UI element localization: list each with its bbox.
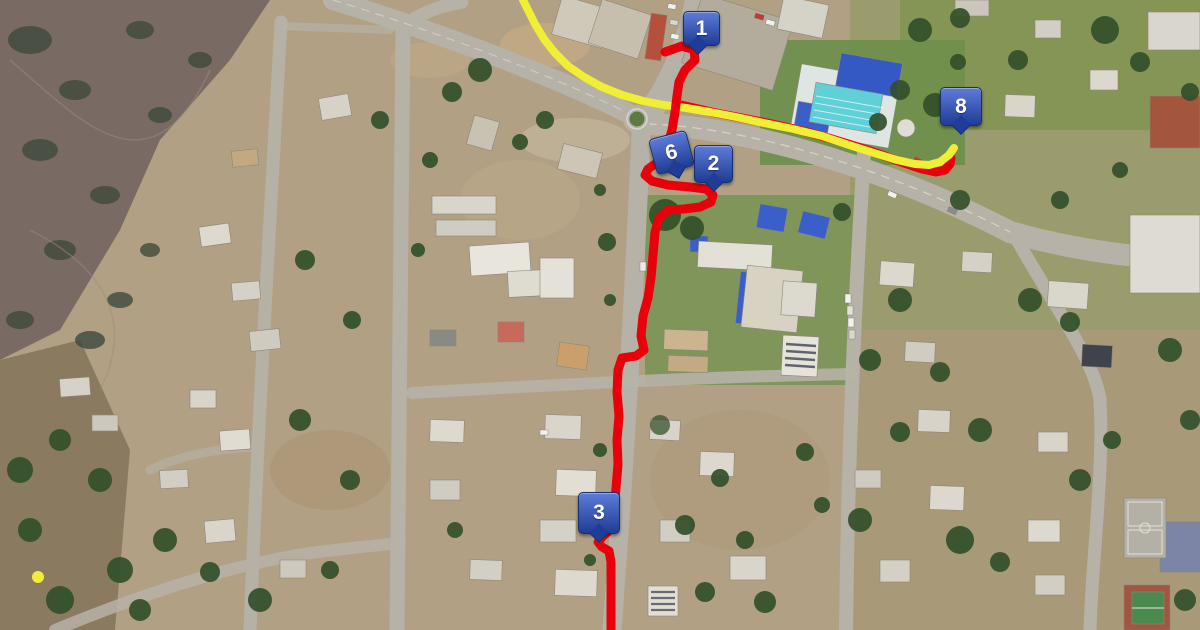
route-marker-2[interactable]: 2 (694, 145, 733, 183)
marker-number: 6 (663, 139, 681, 165)
marker-number: 8 (955, 95, 967, 119)
red-route-main[interactable] (598, 46, 713, 630)
route-marker-1[interactable]: 1 (683, 11, 720, 46)
route-marker-3[interactable]: 3 (578, 492, 620, 534)
marker-number: 1 (696, 17, 708, 41)
route-marker-8[interactable]: 8 (940, 87, 982, 126)
satellite-map[interactable]: 16283 (0, 0, 1200, 630)
yellow-waypoint-dot[interactable] (32, 571, 44, 583)
marker-number: 3 (593, 501, 605, 525)
yellow-route[interactable] (523, 0, 954, 165)
marker-number: 2 (708, 152, 720, 176)
